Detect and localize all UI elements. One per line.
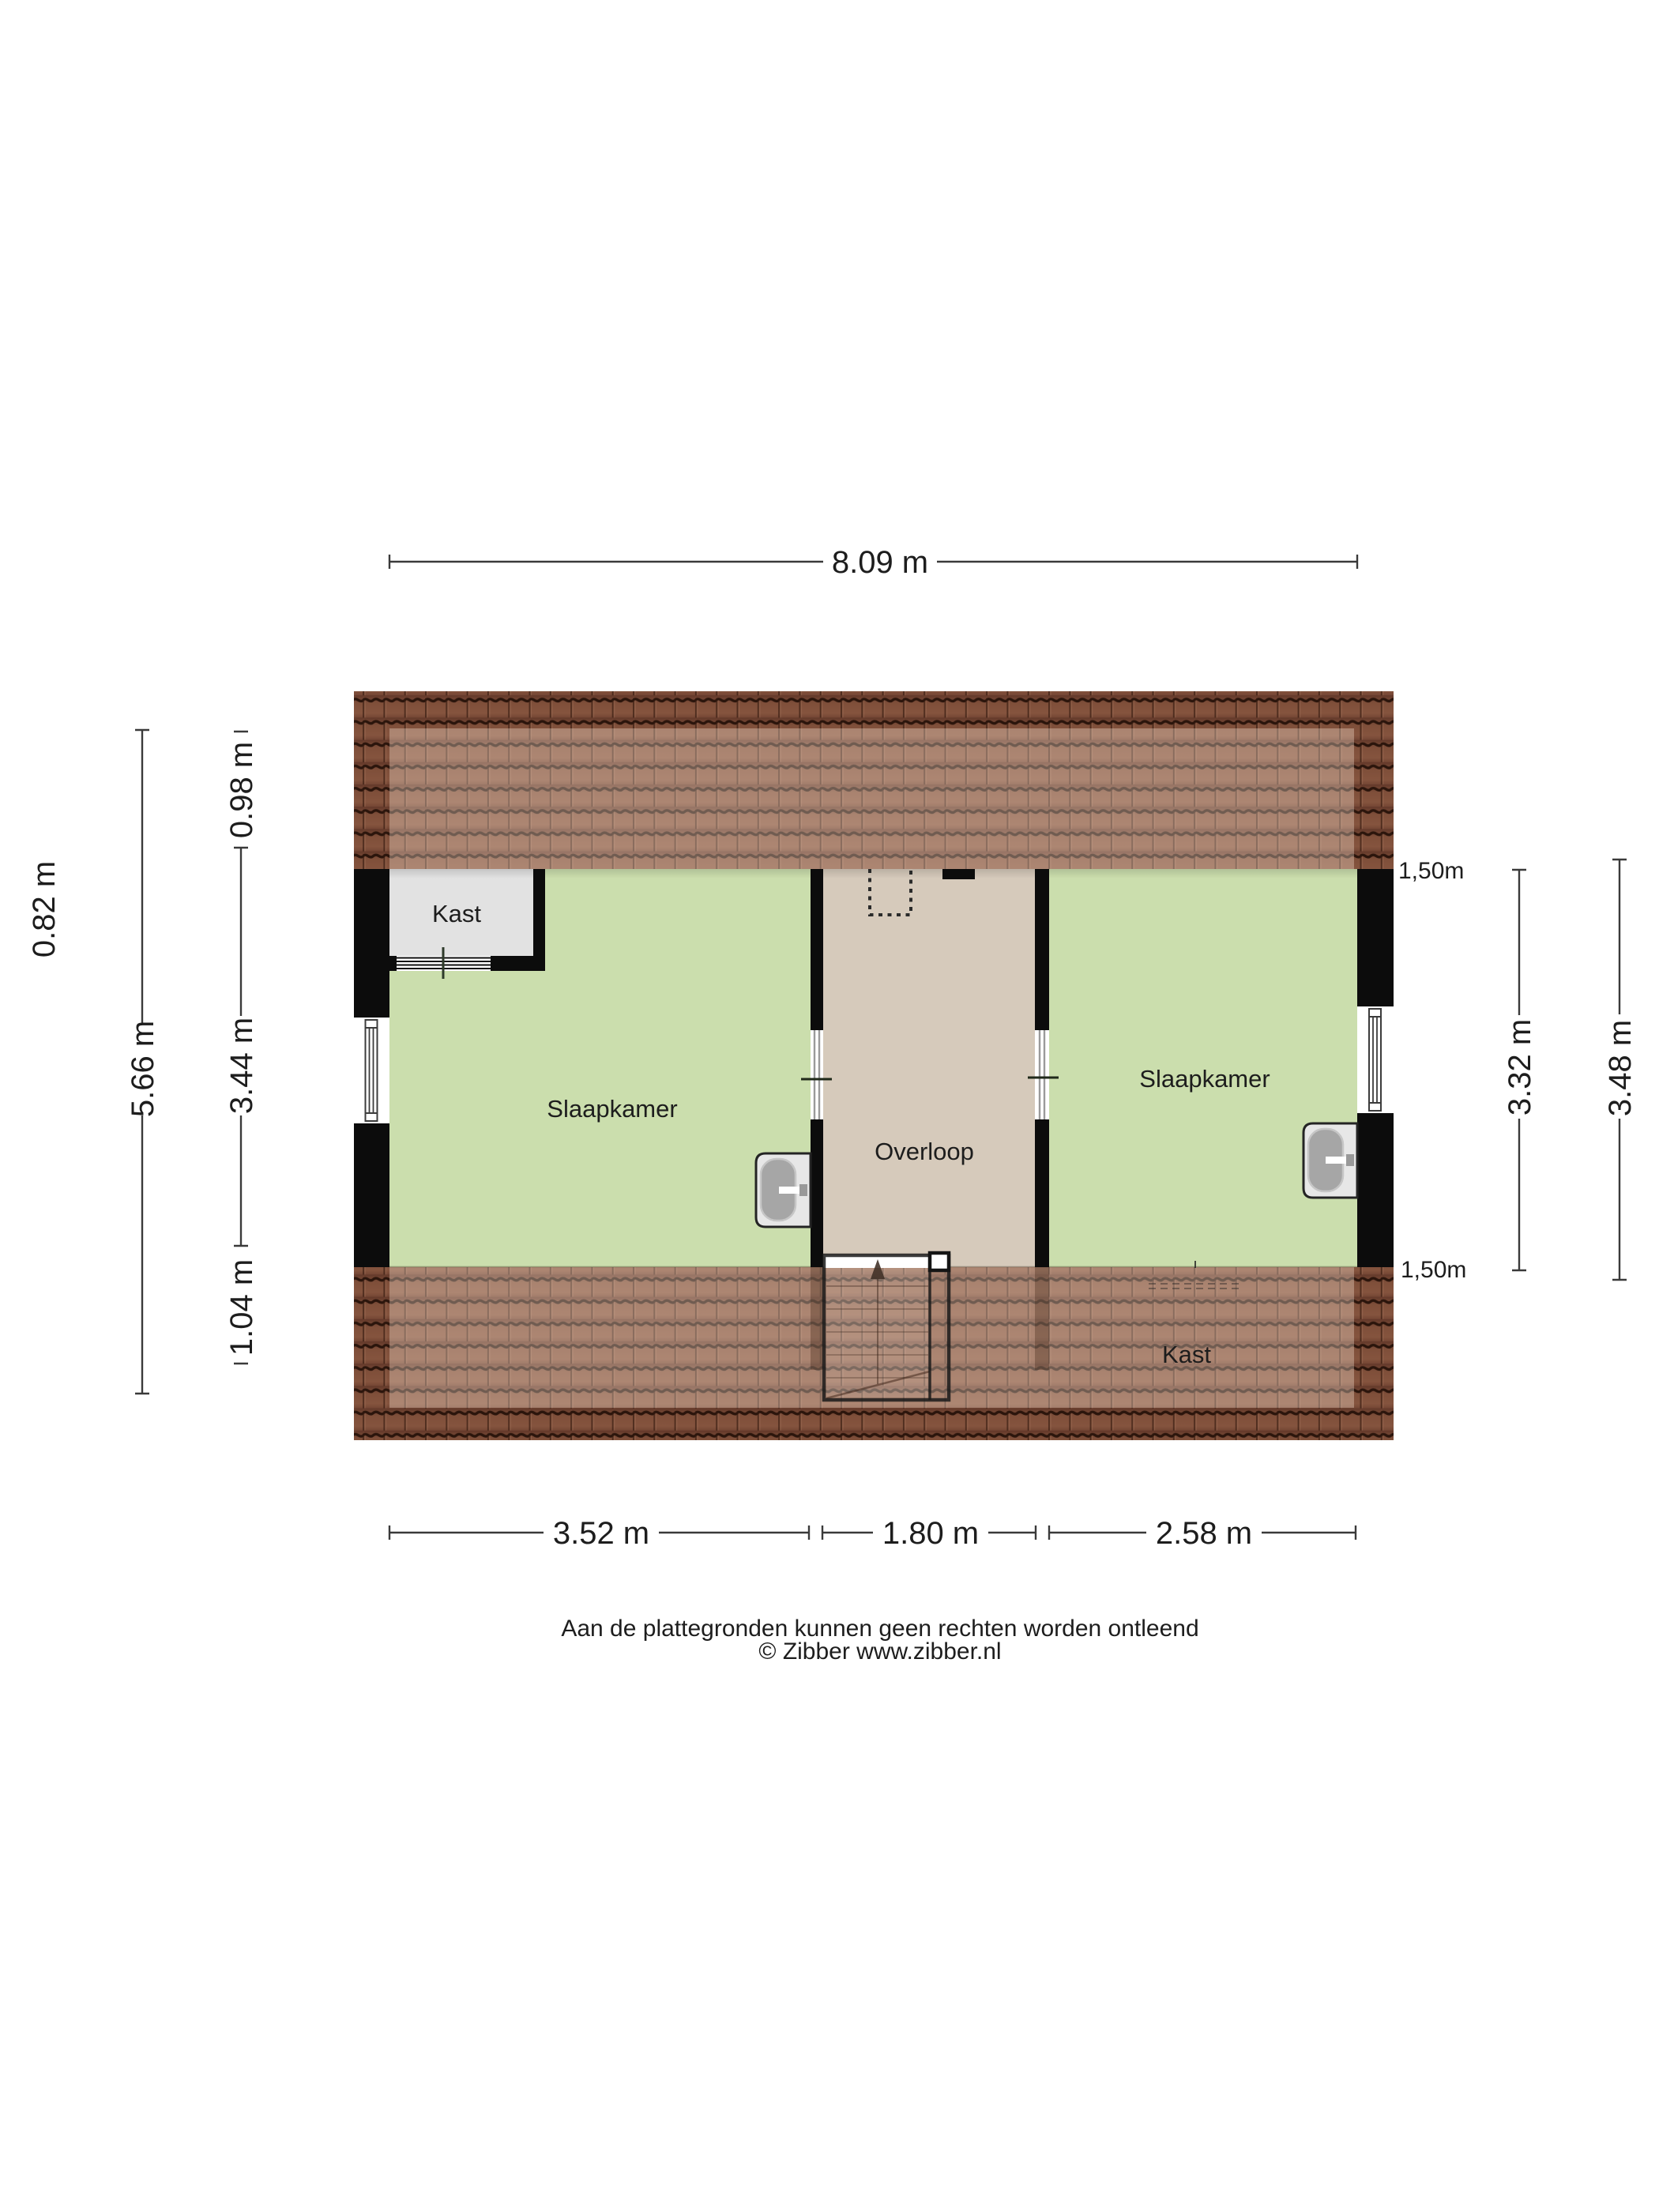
svg-text:Slaapkamer: Slaapkamer bbox=[1139, 1065, 1270, 1093]
svg-text:1,50m: 1,50m bbox=[1401, 1257, 1466, 1283]
svg-text:1.80 m: 1.80 m bbox=[882, 1516, 979, 1551]
svg-text:Kast: Kast bbox=[1162, 1341, 1211, 1368]
svg-text:8.09 m: 8.09 m bbox=[832, 545, 928, 580]
svg-text:2.58 m: 2.58 m bbox=[1156, 1516, 1252, 1551]
svg-text:0.98 m: 0.98 m bbox=[224, 742, 259, 838]
svg-text:3.32 m: 3.32 m bbox=[1503, 1019, 1537, 1115]
svg-text:© Zibber www.zibber.nl: © Zibber www.zibber.nl bbox=[758, 1638, 1001, 1665]
svg-text:Kast: Kast bbox=[432, 900, 481, 927]
svg-text:5.66 m: 5.66 m bbox=[126, 1021, 160, 1117]
svg-text:3.44 m: 3.44 m bbox=[224, 1018, 259, 1114]
svg-text:Overloop: Overloop bbox=[875, 1138, 974, 1165]
svg-text:3.52 m: 3.52 m bbox=[553, 1516, 649, 1551]
svg-text:1,50m: 1,50m bbox=[1398, 858, 1464, 884]
svg-text:1.04 m: 1.04 m bbox=[224, 1259, 259, 1356]
svg-text:0.82 m: 0.82 m bbox=[27, 861, 62, 957]
svg-text:Slaapkamer: Slaapkamer bbox=[547, 1095, 677, 1123]
svg-text:3.48 m: 3.48 m bbox=[1603, 1020, 1638, 1116]
